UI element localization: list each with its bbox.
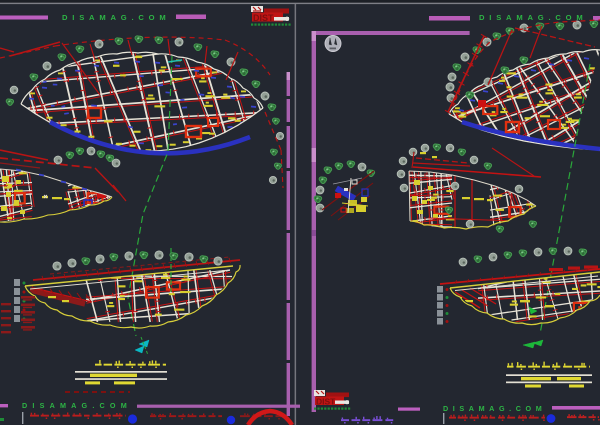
svg-text:DIST: DIST [316,397,336,407]
svg-text:DISAMAG.COM: DISAMAG.COM [62,13,171,22]
svg-text:DISAMAG.COM: DISAMAG.COM [479,13,588,22]
svg-text:DISAMAG.COM: DISAMAG.COM [22,401,132,410]
svg-text:DISAMAG.COM: DISAMAG.COM [443,404,546,413]
svg-text:DIST: DIST [253,13,274,23]
